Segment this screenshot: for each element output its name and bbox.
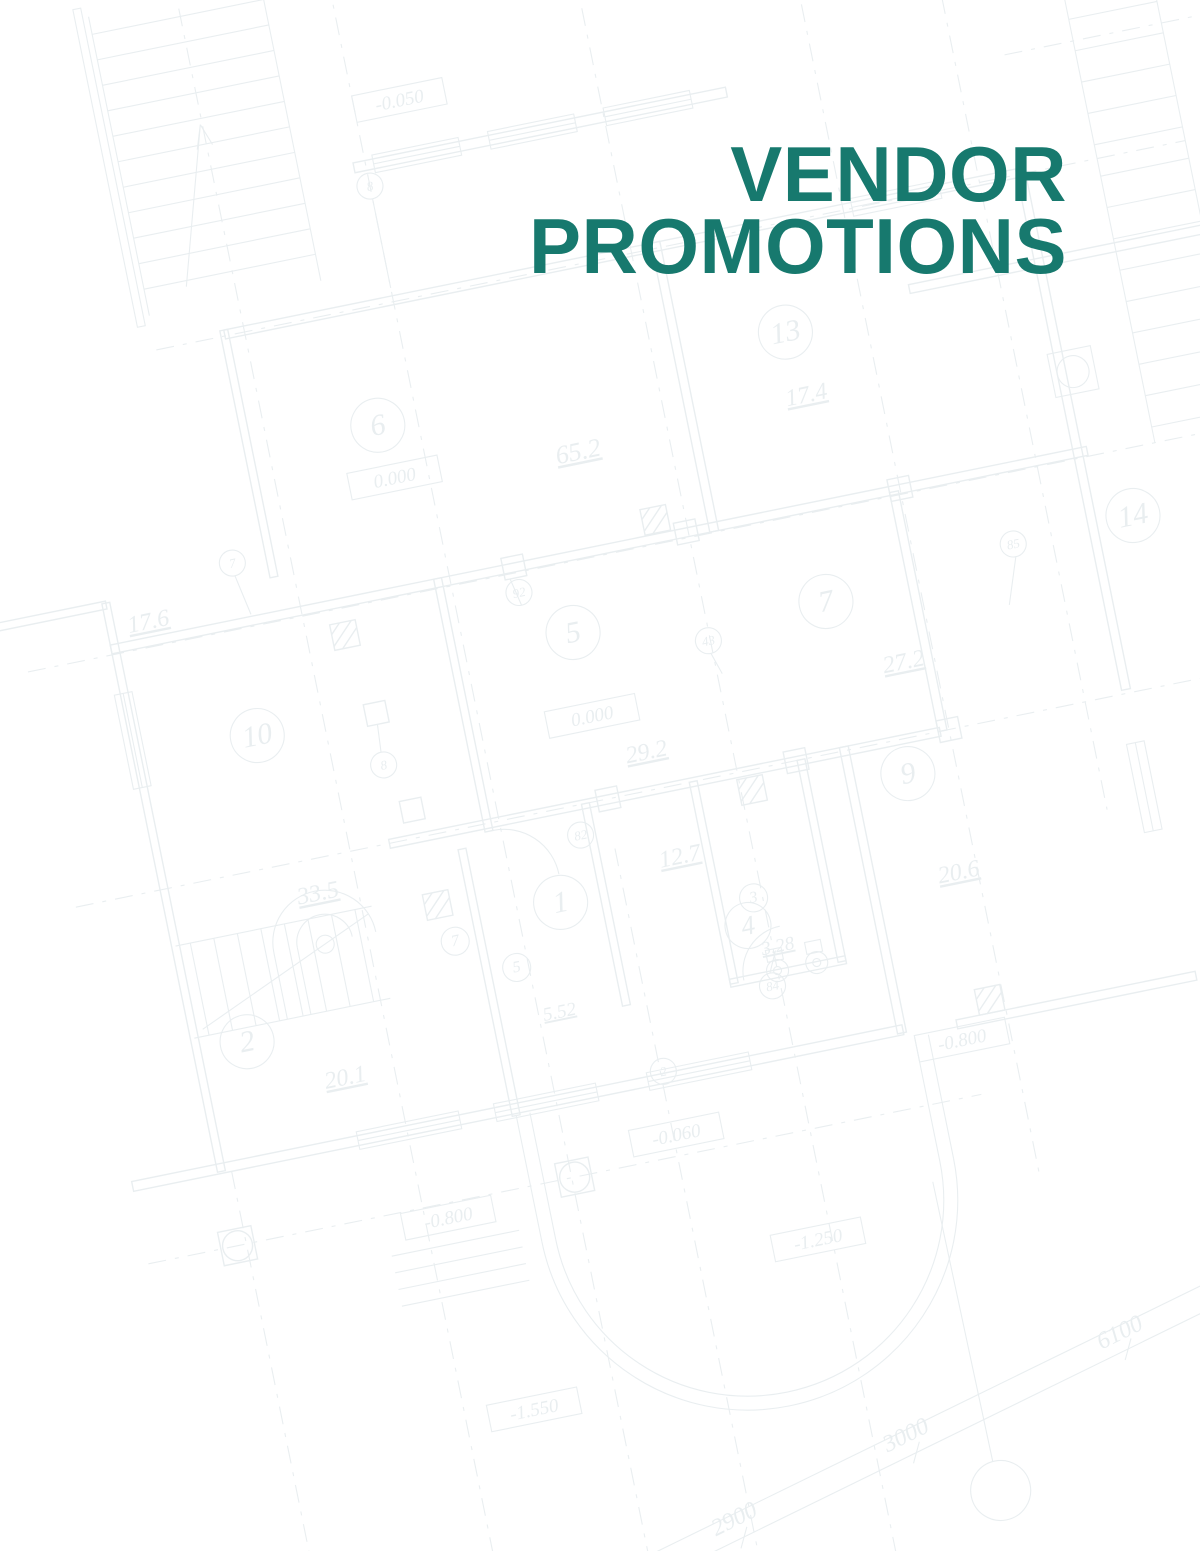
plan-axis-bubble-number: 84 (765, 977, 781, 994)
plan-room-number: 6 (367, 408, 388, 443)
plan-room-number: 1 (550, 885, 571, 920)
plan-dimension-label: 2900 (707, 1497, 762, 1542)
plan-axis-bubble-number: 2 (659, 1063, 669, 1079)
plan-area-label: 5.52 (541, 999, 578, 1026)
plan-room-number: 13 (767, 313, 803, 351)
page-title-line1: VENDOR (529, 138, 1067, 210)
plan-stairs-mid (170, 881, 390, 1038)
plan-room-number: 4 (738, 909, 757, 941)
plan-room-number: 7 (450, 932, 462, 950)
page-title: VENDOR PROMOTIONS (529, 138, 1067, 282)
plan-axis-bubble-number: 43 (701, 632, 717, 649)
plan-room-number: 10 (239, 716, 275, 754)
plan-room-number: 14 (1115, 496, 1151, 534)
plan-axis-bubble-number: 85 (1005, 535, 1021, 552)
plan-area-label: 33.5 (294, 877, 341, 911)
plan-room-number: 5 (562, 615, 583, 650)
plan-terrace-arc (369, 1032, 995, 1478)
plan-axis-bubble-number: 8 (365, 178, 375, 194)
plan-room-number: 7 (815, 583, 838, 619)
plan-axis-bubble-number: 92 (511, 584, 527, 601)
plan-area-label: 29.2 (623, 735, 669, 769)
plan-elevation-mark: 0.000 (372, 464, 419, 493)
plan-axis-bubble-number: 8 (379, 757, 389, 773)
plan-stairs-top (73, 0, 323, 327)
plan-room-number: 3 (747, 889, 759, 907)
plan-area-label: 27.2 (880, 645, 926, 679)
page-title-line2: PROMOTIONS (529, 210, 1067, 282)
plan-room-number: 2 (236, 1024, 257, 1059)
plan-room-number: 5 (511, 958, 522, 976)
plan-axis-bubble-number: 7 (228, 555, 238, 571)
plan-room-markers: 6 13 5 7 10 9 1 2 14 4 5 3 7 (98, 240, 1200, 1074)
plan-dimension-labels: 2900 3000 6100 (683, 1309, 1170, 1543)
plan-dimension-label: 6100 (1093, 1310, 1148, 1355)
plan-area-label: 65.2 (553, 433, 603, 470)
plan-fixtures (422, 346, 1200, 1032)
plan-area-label: 3.28 (758, 933, 796, 961)
plan-elevation-mark: 0.000 (569, 702, 616, 731)
plan-area-label: 17.4 (783, 378, 829, 412)
plan-room-number: 9 (897, 756, 918, 791)
plan-area-label: 20.1 (322, 1061, 368, 1095)
plan-dimension-label: 3000 (878, 1413, 933, 1458)
page: 6 13 5 7 10 9 1 2 14 4 5 3 7 8 92 43 8 8… (0, 0, 1200, 1551)
plan-area-label: 12.7 (657, 840, 704, 874)
plan-area-label: 20.6 (935, 856, 981, 890)
